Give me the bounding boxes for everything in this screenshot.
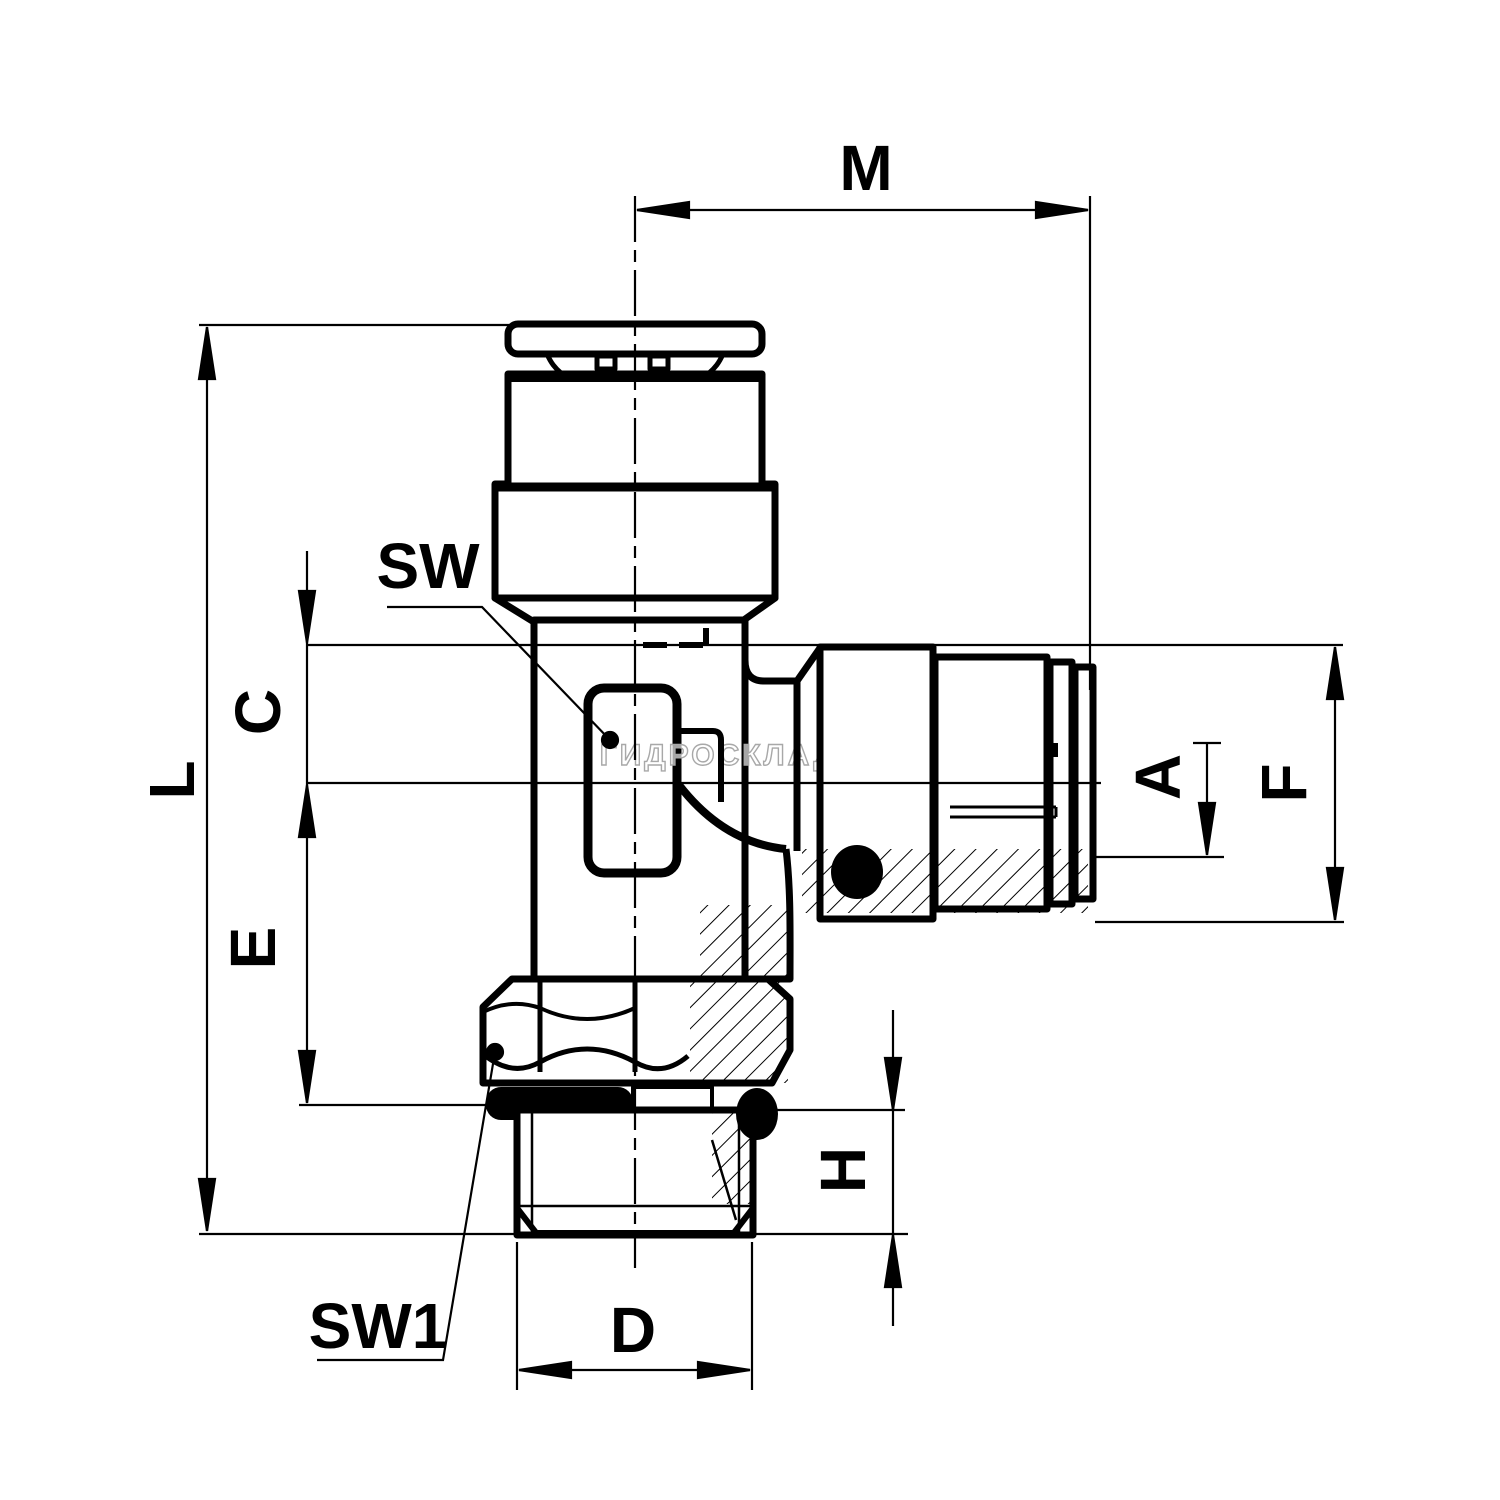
dim-label-sw: SW bbox=[376, 530, 480, 602]
release-ring-nib-right bbox=[650, 356, 668, 369]
dim-label-a: A bbox=[1122, 754, 1194, 800]
dim-label-f: F bbox=[1248, 763, 1320, 802]
dim-label-e: E bbox=[217, 927, 289, 970]
collet-latch-detail bbox=[1047, 743, 1058, 757]
dim-label-sw1: SW1 bbox=[309, 1290, 448, 1362]
dim-label-l: L bbox=[136, 760, 208, 799]
dim-label-h: H bbox=[807, 1147, 879, 1193]
fitting-technical-drawing: ГИДРОСКЛАД.РФ bbox=[0, 0, 1500, 1500]
dim-f bbox=[1327, 647, 1343, 920]
drawing-canvas: ГИДРОСКЛАД.РФ bbox=[0, 0, 1500, 1500]
dim-h bbox=[885, 1010, 901, 1326]
o-ring-side-port bbox=[831, 845, 883, 899]
release-ring-nib-left bbox=[597, 356, 615, 369]
body-hex-flat bbox=[588, 688, 677, 873]
hatch-nut-section bbox=[690, 980, 788, 1083]
dim-label-c: C bbox=[222, 689, 294, 735]
hatch-body-skirt bbox=[700, 905, 788, 977]
lock-nut-and-stud bbox=[483, 979, 790, 1235]
dim-m bbox=[637, 202, 1088, 218]
dim-label-d: D bbox=[610, 1294, 656, 1366]
dim-label-m: M bbox=[839, 132, 892, 204]
o-ring-stud bbox=[736, 1088, 778, 1140]
dim-c-e bbox=[299, 551, 315, 1103]
side-port-neck-top bbox=[745, 660, 797, 681]
